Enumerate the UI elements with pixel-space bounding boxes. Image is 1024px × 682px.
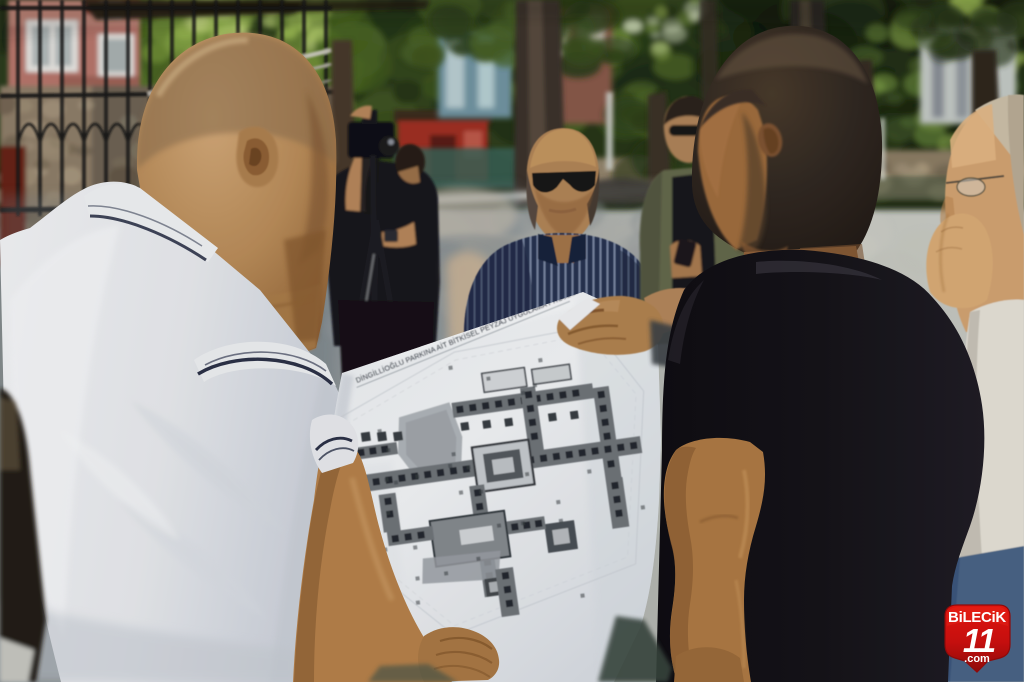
svg-text:.com: .com	[964, 653, 990, 665]
